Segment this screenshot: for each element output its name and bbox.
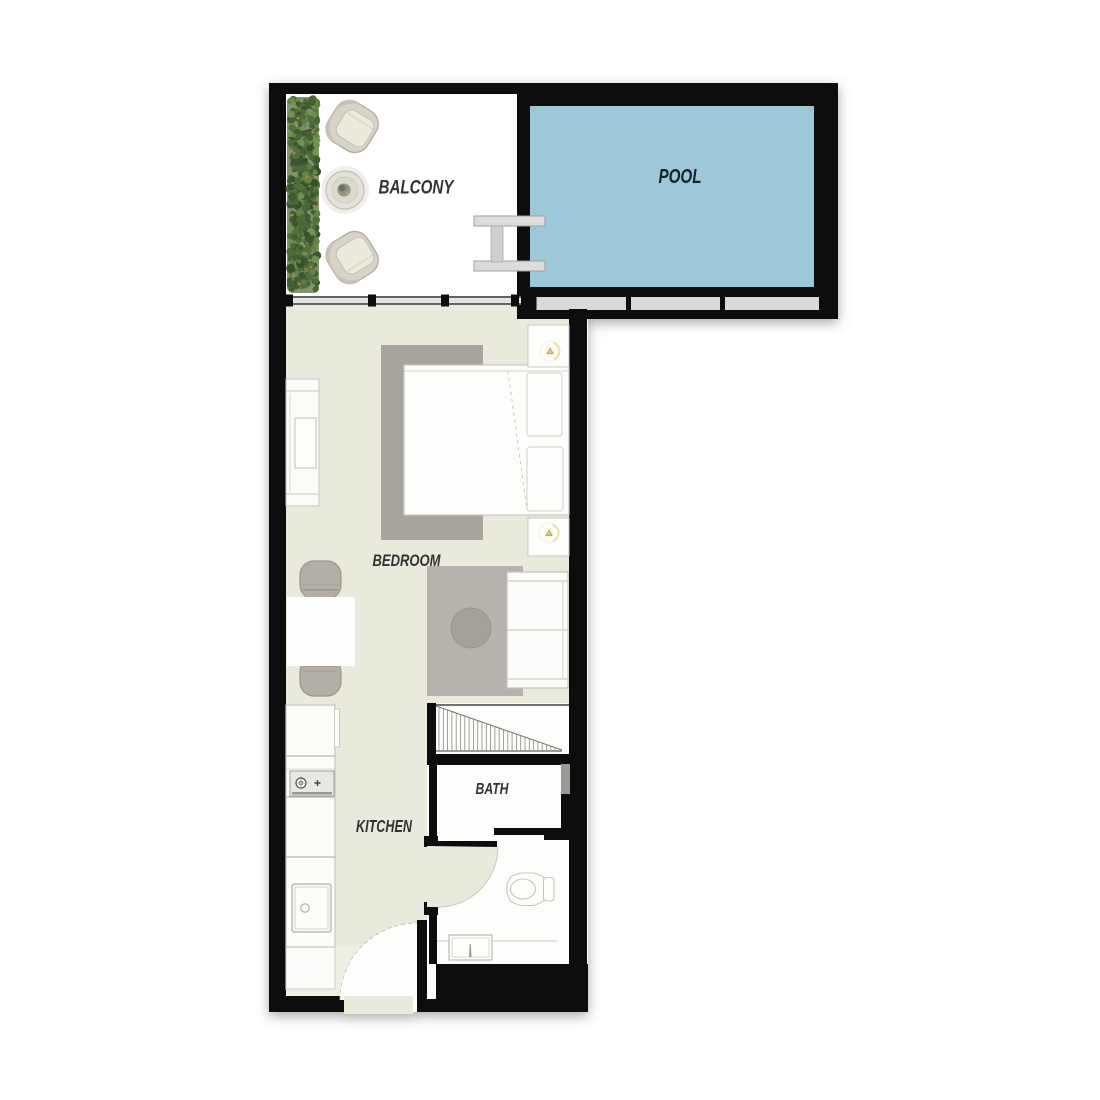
svg-text:POOL: POOL	[659, 166, 702, 188]
svg-text:BALCONY: BALCONY	[379, 177, 456, 199]
svg-text:KITCHEN: KITCHEN	[356, 816, 412, 836]
svg-text:BATH: BATH	[476, 781, 510, 798]
svg-text:BEDROOM: BEDROOM	[373, 551, 442, 570]
